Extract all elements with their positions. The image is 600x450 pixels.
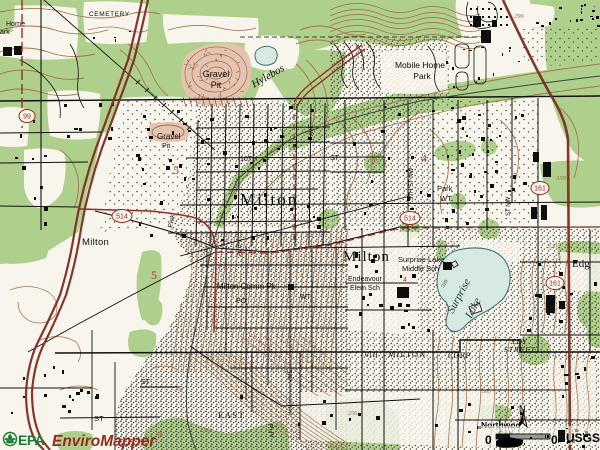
svg-text:0: 0 <box>485 433 492 447</box>
svg-text:EnviroMapper: EnviroMapper <box>52 433 156 450</box>
svg-text:®: ® <box>157 430 163 439</box>
svg-text:5TH ST NW: 5TH ST NW <box>409 167 415 200</box>
svg-text:CEMETERY: CEMETERY <box>89 11 130 18</box>
svg-text:5: 5 <box>151 268 157 282</box>
svg-text:Pit: Pit <box>162 143 170 150</box>
svg-text:256: 256 <box>348 411 357 417</box>
svg-text:ST: ST <box>94 414 104 423</box>
svg-text:Mobile Home: Mobile Home <box>395 60 445 70</box>
svg-text:Horne: Horne <box>6 21 25 28</box>
svg-text:Milton: Milton <box>82 237 109 248</box>
svg-text:Milton: Milton <box>240 190 298 209</box>
svg-text:514: 514 <box>404 216 416 223</box>
svg-text:AVE: AVE <box>237 244 243 256</box>
svg-text:99: 99 <box>23 114 31 121</box>
svg-text:320: 320 <box>547 244 557 250</box>
svg-text:MILTON: MILTON <box>388 349 426 359</box>
svg-text:267: 267 <box>372 158 383 165</box>
svg-text:EPA: EPA <box>18 432 45 448</box>
svg-text:359: 359 <box>555 175 567 182</box>
svg-text:5: 5 <box>173 163 179 177</box>
svg-text:514: 514 <box>116 214 128 221</box>
svg-text:CORP: CORP <box>448 350 470 360</box>
svg-text:Surprise Lake: Surprise Lake <box>398 255 444 264</box>
svg-text:ST NW: ST NW <box>506 196 512 216</box>
svg-text:161: 161 <box>534 186 546 193</box>
svg-text:N: N <box>519 404 526 414</box>
svg-text:4: 4 <box>421 151 427 165</box>
svg-text:Gravel: Gravel <box>203 69 230 79</box>
svg-text:ark: ark <box>0 29 10 36</box>
svg-text:10TH: 10TH <box>240 156 257 163</box>
svg-text:Gravel: Gravel <box>157 132 181 141</box>
svg-text:WT: WT <box>300 294 312 301</box>
svg-text:Edg: Edg <box>572 258 590 270</box>
svg-text:Pit: Pit <box>211 80 222 90</box>
svg-text:204: 204 <box>202 427 211 434</box>
svg-text:0: 0 <box>551 433 558 447</box>
svg-text:4: 4 <box>403 277 407 284</box>
svg-text:Milton Comm Pk: Milton Comm Pk <box>217 282 277 291</box>
svg-text:PO: PO <box>236 298 247 305</box>
svg-text:Middle Sch: Middle Sch <box>402 264 439 273</box>
svg-text:EAST: EAST <box>218 410 245 420</box>
svg-text:Elem Sch: Elem Sch <box>350 285 380 292</box>
svg-text:AVE: AVE <box>288 369 294 381</box>
svg-text:360: 360 <box>481 389 491 395</box>
svg-text:Milton: Milton <box>343 249 390 265</box>
svg-text:250: 250 <box>174 387 183 393</box>
svg-text:WT: WT <box>440 194 452 203</box>
svg-text:Park: Park <box>413 71 431 81</box>
svg-text:161: 161 <box>549 281 561 288</box>
svg-text:AVE: AVE <box>309 124 315 136</box>
svg-text:6TH: 6TH <box>365 351 378 359</box>
svg-text:STREET: STREET <box>504 345 536 354</box>
svg-text:Park: Park <box>437 184 453 193</box>
svg-text:ST: ST <box>330 155 340 162</box>
svg-text:ST: ST <box>141 379 151 386</box>
svg-text:296: 296 <box>514 13 525 20</box>
svg-text:Endeavour: Endeavour <box>348 276 383 283</box>
